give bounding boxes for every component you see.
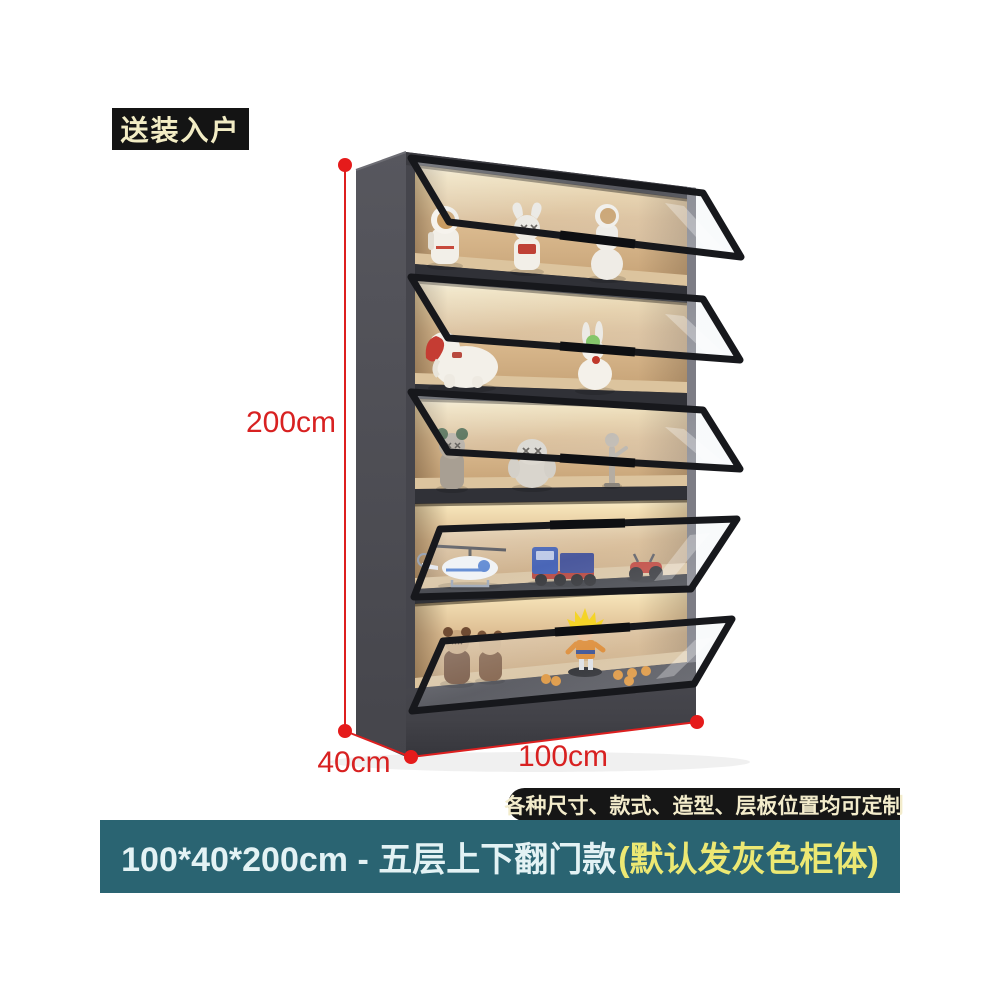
glass-door-4: [414, 519, 737, 597]
product-spec-banner: 100*40*200cm - 五层上下翻门款 (默认发灰色柜体): [100, 820, 900, 893]
customization-ribbon: 各种尺寸、款式、造型、层板位置均可定制: [508, 788, 900, 821]
cabinet-side-panel: [356, 152, 406, 757]
dimension-dot-front-right: [690, 715, 704, 729]
dimension-dot-bottom-left: [338, 724, 352, 738]
product-image: 200cm 40cm 100cm 送装入户 各种尺寸、款式、造型、层板位置均可定…: [0, 0, 1000, 1000]
dimension-dot-front-left: [404, 750, 418, 764]
product-spec-text: 100*40*200cm - 五层上下翻门款: [121, 832, 616, 881]
customization-ribbon-label: 各种尺寸、款式、造型、层板位置均可定制: [505, 790, 904, 820]
dimension-dot-top: [338, 158, 352, 172]
product-spec-highlight: (默认发灰色柜体): [618, 832, 879, 881]
delivery-install-badge-label: 送装入户: [120, 109, 240, 149]
width-dimension-label: 100cm: [518, 740, 608, 773]
height-dimension-label: 200cm: [246, 406, 336, 439]
depth-dimension-label: 40cm: [317, 746, 390, 779]
delivery-install-badge: 送装入户: [112, 108, 249, 150]
